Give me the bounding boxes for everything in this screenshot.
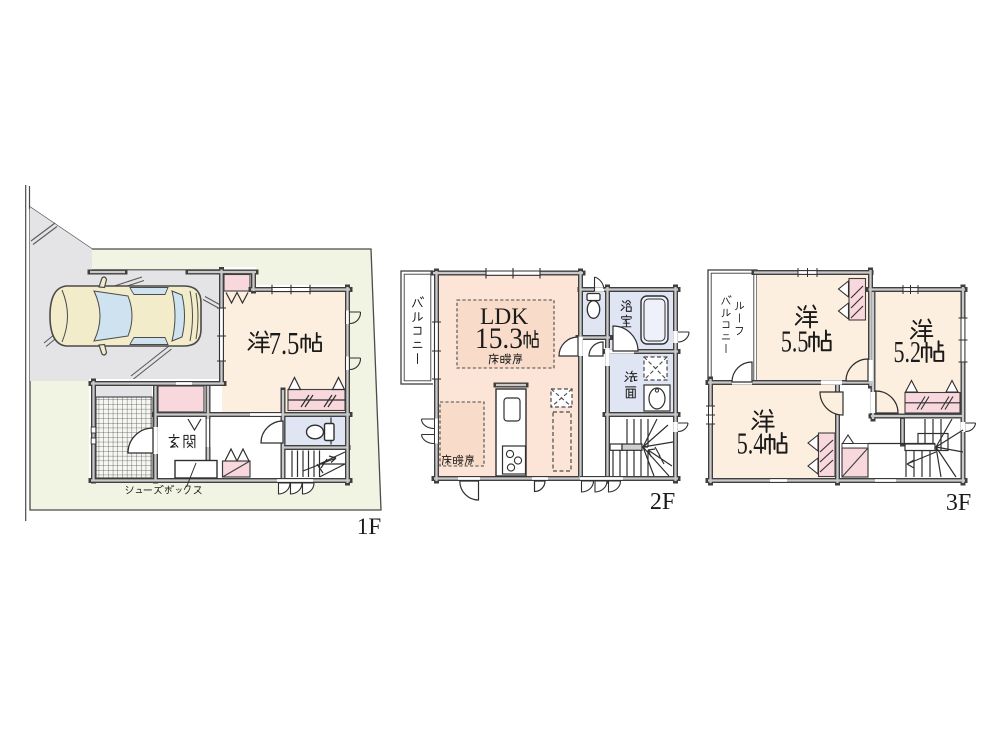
svg-text:1F: 1F <box>357 514 381 539</box>
svg-text:15.3: 15.3 <box>475 323 523 355</box>
svg-text:3F: 3F <box>946 490 971 516</box>
svg-text:5.4: 5.4 <box>737 426 765 461</box>
svg-text:5.5: 5.5 <box>781 323 809 358</box>
svg-text:5.2: 5.2 <box>894 334 922 369</box>
svg-text:2F: 2F <box>650 489 675 515</box>
svg-text:7.5: 7.5 <box>269 325 300 361</box>
